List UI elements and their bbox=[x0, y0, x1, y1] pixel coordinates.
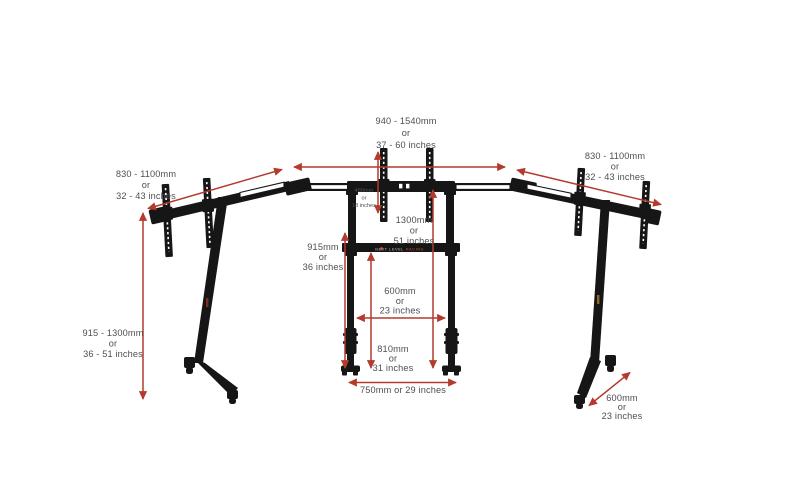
brand-text-racing: RACING bbox=[406, 247, 424, 251]
dimension-diagram: NEXT LEVEL RACING bbox=[0, 0, 800, 500]
svg-text:or: or bbox=[362, 196, 367, 202]
svg-text:36 - 51 inches: 36 - 51 inches bbox=[83, 349, 143, 359]
svg-text:1300mm: 1300mm bbox=[396, 215, 433, 225]
svg-text:480mm: 480mm bbox=[355, 188, 374, 194]
svg-text:or: or bbox=[142, 180, 150, 190]
diagram-svg: NEXT LEVEL RACING bbox=[0, 0, 800, 500]
svg-text:or: or bbox=[410, 226, 418, 236]
svg-text:or: or bbox=[611, 162, 619, 172]
brand-text-nextlevel: NEXT LEVEL bbox=[375, 247, 404, 251]
svg-text:750mm or 29 inches: 750mm or 29 inches bbox=[360, 385, 446, 395]
svg-text:51 inches: 51 inches bbox=[394, 236, 435, 246]
dimension-labels: 940 - 1540mm or 37 - 60 inches 830 - 110… bbox=[82, 116, 645, 421]
dim-label-leg-width: 600mm or 23 inches bbox=[380, 286, 421, 316]
svg-text:600mm: 600mm bbox=[384, 286, 416, 296]
svg-text:or: or bbox=[109, 339, 117, 349]
svg-text:36 inches: 36 inches bbox=[303, 262, 344, 272]
svg-text:915mm: 915mm bbox=[307, 242, 339, 252]
svg-text:830 - 1100mm: 830 - 1100mm bbox=[116, 169, 177, 179]
dim-label-overall-width: 940 - 1540mm or 37 - 60 inches bbox=[375, 116, 436, 150]
right-wing-vesa-rail-outer bbox=[637, 181, 652, 250]
svg-text:23 inches: 23 inches bbox=[380, 306, 421, 316]
svg-text:or: or bbox=[389, 354, 397, 364]
dim-label-total-height: 1300mm or 51 inches bbox=[394, 215, 435, 246]
dim-label-base-width: 750mm or 29 inches bbox=[360, 385, 446, 395]
svg-text:23 inches: 23 inches bbox=[602, 411, 643, 421]
svg-text:or: or bbox=[402, 128, 410, 138]
dim-label-frame-height: 915mm or 36 inches bbox=[303, 242, 344, 272]
svg-text:32 - 43 inches: 32 - 43 inches bbox=[585, 172, 645, 182]
svg-text:830 - 1100mm: 830 - 1100mm bbox=[585, 151, 646, 161]
dim-label-right-wing: 830 - 1100mm or 32 - 43 inches bbox=[585, 151, 646, 182]
dim-label-lower-height: 810mm or 31 inches bbox=[373, 344, 414, 373]
top-crossbar bbox=[284, 177, 537, 196]
dim-label-foot-depth: 600mm or 23 inches bbox=[602, 393, 643, 421]
svg-text:32 - 43 inches: 32 - 43 inches bbox=[116, 191, 176, 201]
svg-text:18 inches: 18 inches bbox=[352, 203, 376, 209]
svg-text:or: or bbox=[396, 296, 404, 306]
svg-text:or: or bbox=[319, 252, 327, 262]
dim-label-side-height: 915 - 1300mm or 36 - 51 inches bbox=[82, 328, 143, 359]
svg-text:810mm: 810mm bbox=[377, 344, 409, 354]
svg-text:940 - 1540mm: 940 - 1540mm bbox=[375, 116, 436, 126]
svg-text:37 - 60 inches: 37 - 60 inches bbox=[376, 140, 436, 150]
svg-text:31 inches: 31 inches bbox=[373, 363, 414, 373]
svg-text:915 - 1300mm: 915 - 1300mm bbox=[82, 328, 143, 338]
